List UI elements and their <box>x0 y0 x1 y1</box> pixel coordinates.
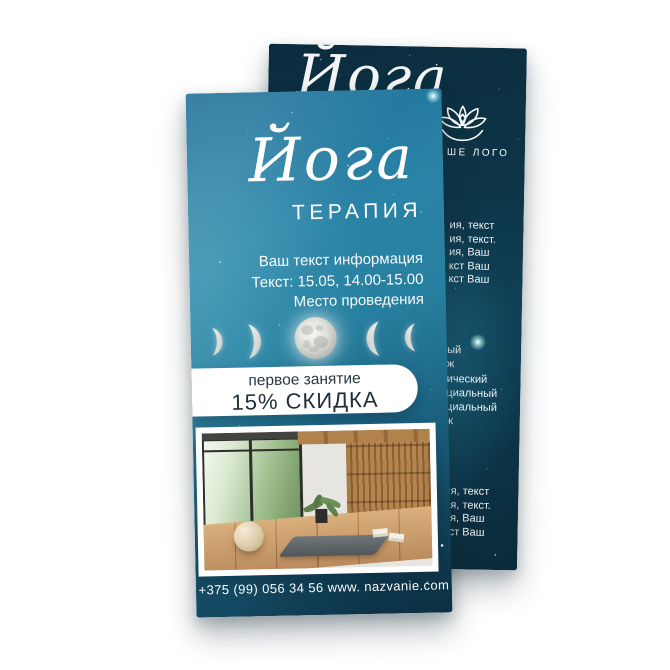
photo-yoga-block <box>372 528 388 537</box>
studio-photo-frame <box>196 423 439 577</box>
flyer-front: Йога ТЕРАПИЯ Ваш текст информация Текст:… <box>186 88 453 617</box>
text-fragment-line: ый <box>447 343 498 358</box>
text-fragment-line: ж <box>447 357 498 372</box>
text-fragment-line: ия, Ваш <box>444 512 491 526</box>
text-fragment-line: ия, текст <box>444 485 491 499</box>
text-fragment-line: ия, текст. <box>449 233 496 247</box>
text-fragment-block-top: ия, текст ия, текст. ия, Ваш кст Ваш кст… <box>448 219 496 287</box>
lotus-logo-icon <box>434 99 491 148</box>
photo-yoga-mat <box>279 534 390 556</box>
title-script: Йога <box>248 119 422 201</box>
text-fragment-line: ия, текст <box>449 219 496 233</box>
title-caps: ТЕРАПИЯ <box>249 199 422 227</box>
title-group: Йога ТЕРАПИЯ Ваш текст информация Текст:… <box>248 119 425 314</box>
mockup-canvas: Йога ШЕ ЛОГО ия, текст ия, текст. ия, Ва… <box>0 0 670 670</box>
waning-crescent-large-icon <box>358 318 384 361</box>
text-fragment-line: циальный <box>446 400 497 415</box>
text-fragment-line: ж <box>446 415 497 430</box>
starfield-back <box>269 44 271 46</box>
text-fragment-line: циальный <box>446 386 497 401</box>
bright-star-icon <box>425 88 440 103</box>
full-moon-icon <box>293 316 338 361</box>
offer-discount: 15% СКИДКА <box>192 387 418 415</box>
text-fragment-line: кст Ваш <box>448 273 495 287</box>
logo-label: ШЕ ЛОГО <box>447 147 510 159</box>
photo-plant-pot <box>315 509 327 523</box>
contact-line: +375 (99) 056 34 56 www. nazvanie.com <box>196 577 452 597</box>
text-fragment-block-middle: ый ж ический циальный циальный ж <box>446 343 498 430</box>
info-line: Ваш текст информация <box>250 249 423 273</box>
waning-crescent-small-icon <box>398 320 419 355</box>
text-fragment-line: ический <box>446 372 497 387</box>
starfield-front <box>186 94 188 96</box>
info-block: Ваш текст информация Текст: 15.05, 14.00… <box>250 249 424 314</box>
text-fragment-line: ия, текст. <box>444 499 491 513</box>
text-fragment-line: ия, Ваш <box>449 246 496 260</box>
waxing-crescent-large-icon <box>243 320 269 363</box>
offer-badge: первое занятие 15% СКИДКА <box>191 364 418 417</box>
text-fragment-line: кст Ваш <box>449 260 496 274</box>
studio-photo <box>202 429 433 571</box>
waxing-crescent-small-icon <box>208 324 229 359</box>
info-line: Место проведения <box>251 290 424 314</box>
